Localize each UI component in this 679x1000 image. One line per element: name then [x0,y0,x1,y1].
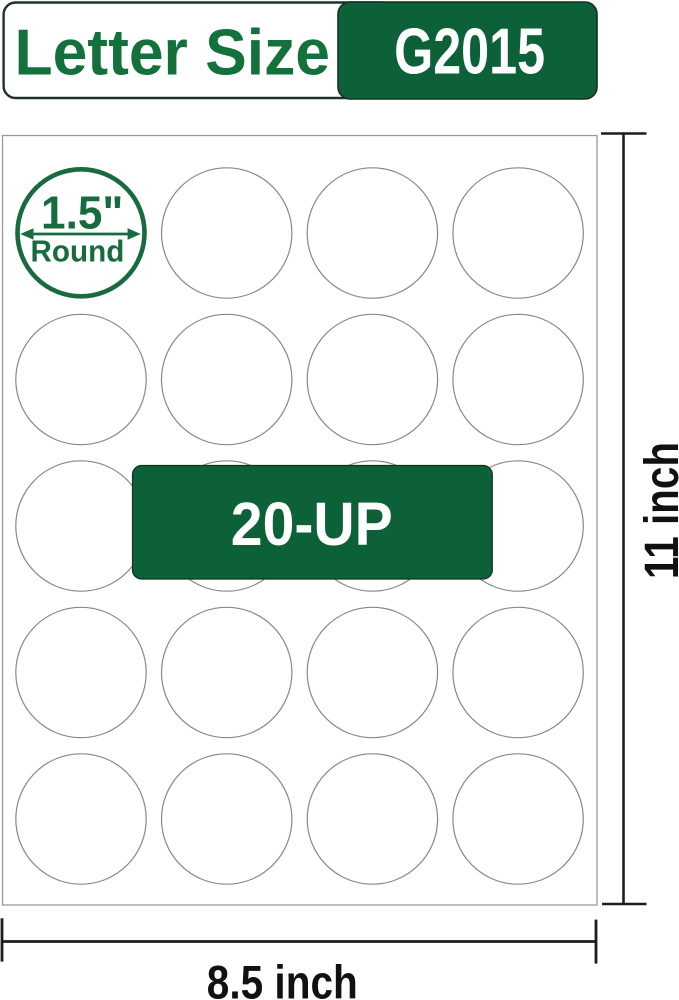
svg-text:Letter Size: Letter Size [15,16,331,89]
svg-text:G2015: G2015 [394,14,545,87]
svg-text:1.5": 1.5" [41,187,123,239]
svg-text:20-UP: 20-UP [231,490,393,558]
svg-text:Round: Round [31,234,125,269]
svg-text:8.5 inch: 8.5 inch [207,957,358,1000]
svg-text:11 inch: 11 inch [636,442,679,579]
